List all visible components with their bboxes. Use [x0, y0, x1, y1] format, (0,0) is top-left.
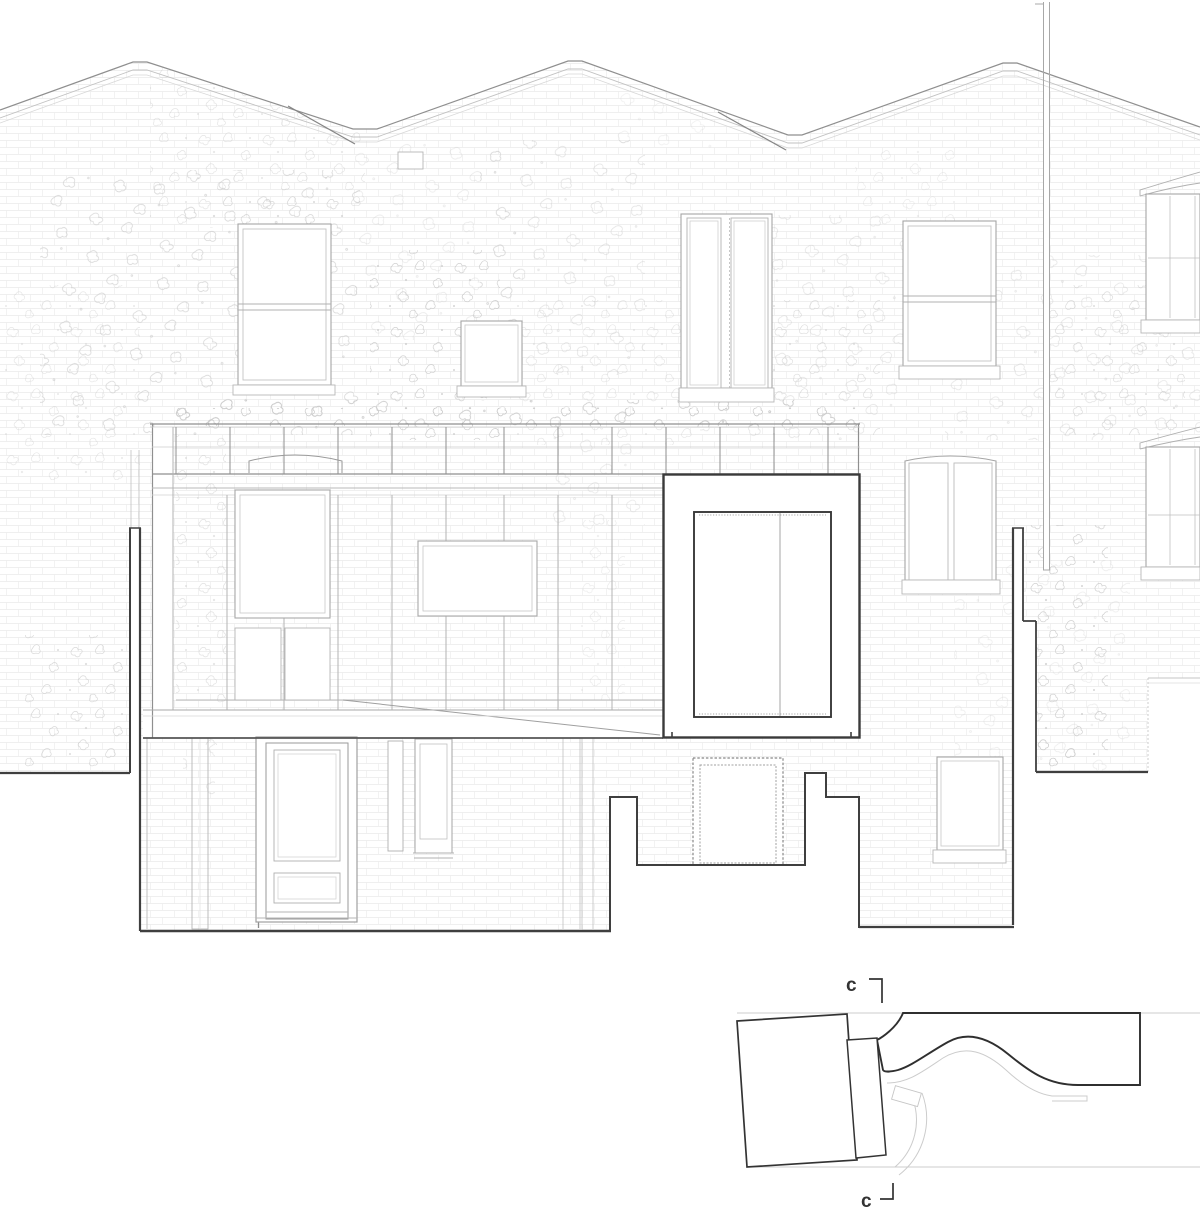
- rear-elevation-drawing: c c: [0, 0, 1200, 1222]
- detail-section-plan: c c: [737, 975, 1200, 1212]
- window-sill: [899, 366, 1000, 379]
- narrow-window: [413, 739, 454, 858]
- elevation-sheet: c c: [0, 0, 1200, 1222]
- window-sill: [679, 388, 774, 402]
- sash-window-upper-right: [899, 221, 1000, 379]
- window-sill: [1141, 567, 1200, 580]
- box-window-glass: [694, 512, 831, 717]
- window-sill: [457, 386, 526, 397]
- box-window: [664, 475, 860, 739]
- section-marker-top: c: [846, 975, 882, 1003]
- garden-door: [256, 737, 357, 922]
- recessed-door: [693, 758, 783, 865]
- neighbour-garden-wall: [1148, 678, 1200, 772]
- section-marker-bottom: c: [861, 1183, 893, 1212]
- section-label: c: [846, 975, 857, 996]
- section-cut-mark: [880, 1183, 893, 1199]
- section-cut-mark: [869, 979, 882, 1003]
- window-sill: [933, 850, 1006, 863]
- sidelight: [388, 741, 403, 851]
- door-swing-arc: [895, 1097, 916, 1167]
- window-sill: [233, 385, 335, 395]
- door-leaf-plan: [737, 1014, 857, 1167]
- arched-pair-window: [902, 456, 1000, 594]
- tall-casement-pair: [679, 214, 774, 402]
- wall-vent: [398, 152, 423, 169]
- curved-wall-section: [877, 1013, 1140, 1085]
- section-label: c: [861, 1191, 872, 1212]
- ground-window-right: [933, 757, 1006, 863]
- neighbour-arched-window-upper: [1140, 172, 1200, 333]
- window-sill: [902, 580, 1000, 594]
- window-sill: [1141, 320, 1200, 333]
- sash-window-upper-left: [233, 224, 335, 395]
- neighbour-arched-window-lower: [1140, 427, 1200, 580]
- hinge-block: [892, 1086, 922, 1107]
- small-window: [457, 321, 526, 397]
